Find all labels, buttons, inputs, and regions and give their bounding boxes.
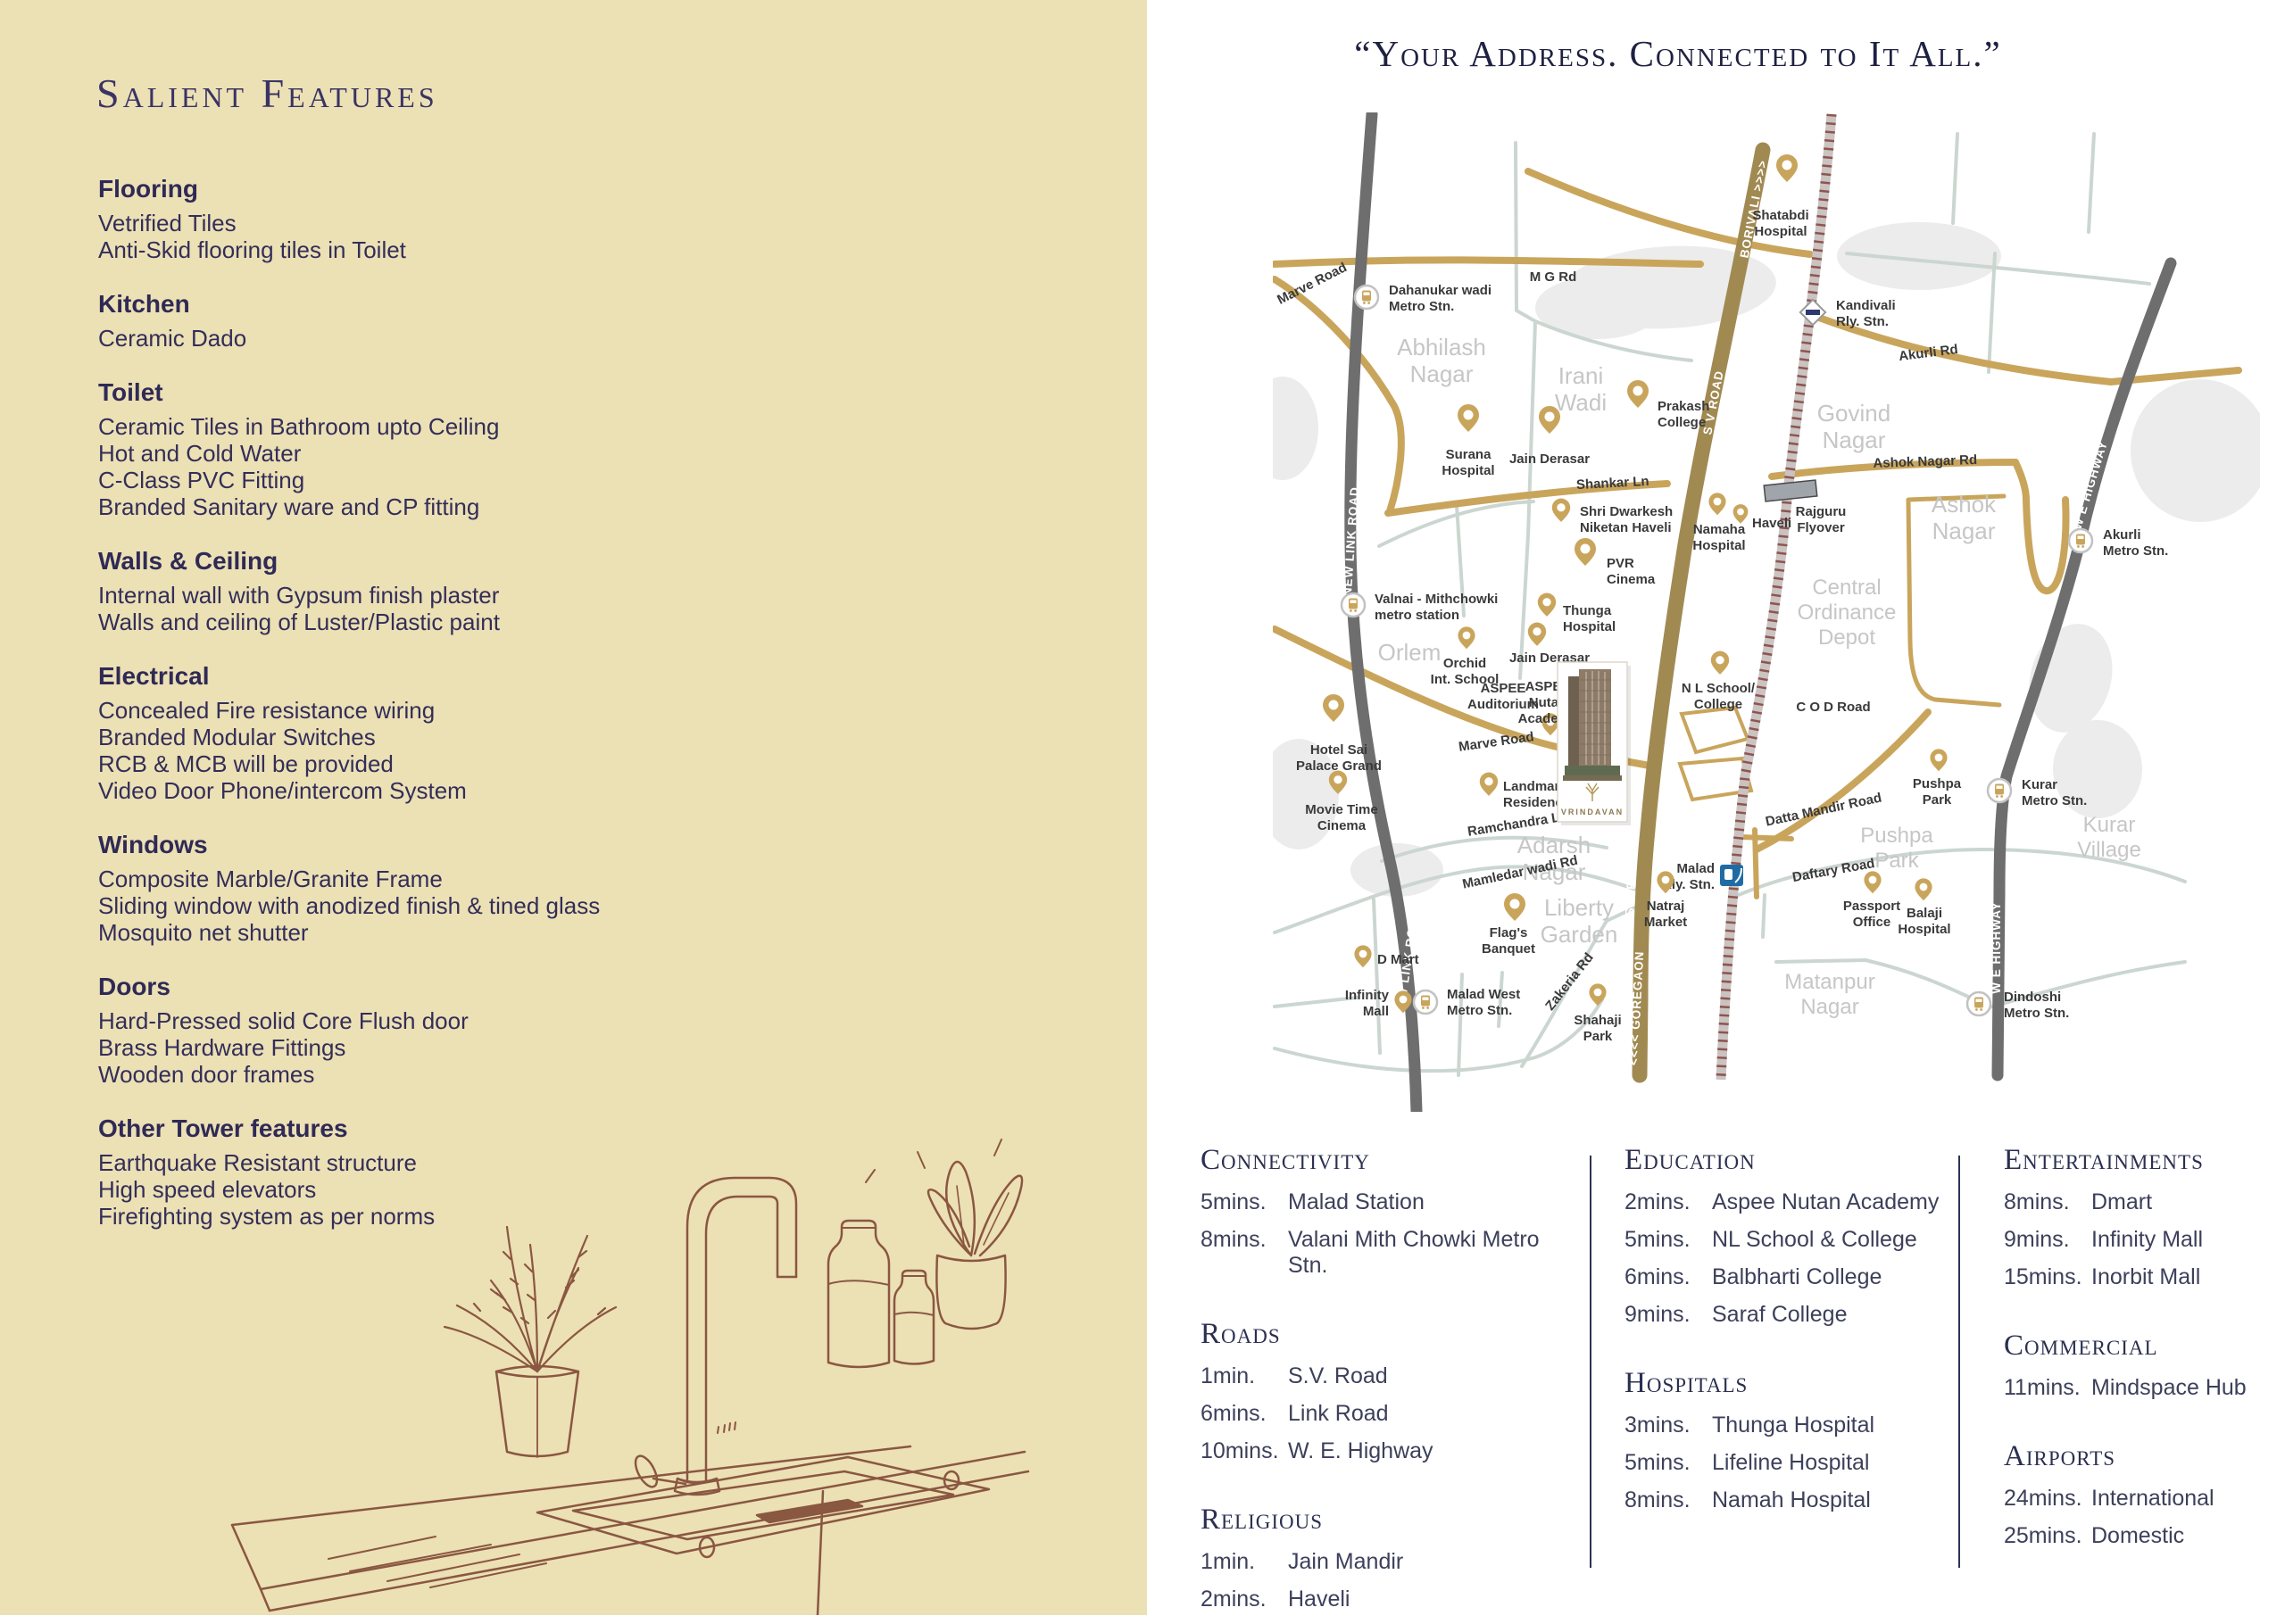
feature-section-electrical: ElectricalConcealed Fire resistance wiri… xyxy=(98,662,723,804)
road-malad-east xyxy=(1741,830,1791,897)
salient-features-title: Salient Features xyxy=(96,70,438,117)
distance-row: 8mins.Dmart xyxy=(2004,1189,2276,1215)
sink-inner-rim xyxy=(573,1471,953,1539)
feature-item: Walls and ceiling of Luster/Plastic pain… xyxy=(98,609,723,635)
category-title: Connectivity xyxy=(1201,1144,1584,1177)
feature-item: Vetrified Tiles xyxy=(98,210,723,236)
distance-time: 11mins. xyxy=(2004,1375,2091,1401)
category-commercial: Commercial11mins.Mindspace Hub xyxy=(2004,1330,2276,1401)
map-pin-pushpa-park: PushpaPark xyxy=(1913,749,1962,808)
feature-item: Hard-Pressed solid Core Flush door xyxy=(98,1007,723,1034)
map-pin-label: PassportOffice xyxy=(1843,899,1900,930)
vrindavan-card-name: VRINDAVAN xyxy=(1561,808,1624,816)
faucet-lever xyxy=(631,1453,661,1490)
onroad-label-new-link-road: NEW LINK ROAD xyxy=(1341,486,1362,597)
map-pin-label: NatrajMarket xyxy=(1644,899,1687,930)
map-park-blobs xyxy=(1273,222,2260,897)
distance-time: 9mins. xyxy=(1624,1302,1712,1328)
distance-place: Infinity Mall xyxy=(2091,1227,2276,1253)
feature-item: Anti-Skid flooring tiles in Toilet xyxy=(98,236,723,263)
category-title: Roads xyxy=(1201,1318,1584,1351)
distance-place: Haveli xyxy=(1288,1587,1584,1612)
distance-time: 5mins. xyxy=(1624,1450,1712,1476)
category-title: Education xyxy=(1624,1144,1955,1177)
distance-place: Inorbit Mall xyxy=(2091,1264,2276,1290)
area-label-orlem: Orlem xyxy=(1378,639,1442,666)
area-label-kurar-village: KurarVillage xyxy=(2077,813,2141,862)
column-divider xyxy=(1958,1156,1960,1568)
feature-item: Wooden door frames xyxy=(98,1061,723,1088)
distance-row: 10mins.W. E. Highway xyxy=(1201,1438,1584,1464)
category-religious: Religious1min.Jain Mandir2mins.Haveli xyxy=(1201,1504,1584,1612)
column-divider xyxy=(1590,1156,1591,1568)
tower-body xyxy=(1579,669,1611,766)
map-pin-kandivali-rly-stn: KandivaliRly. Stn. xyxy=(1800,298,1896,329)
faucet-outline xyxy=(687,1178,796,1482)
feature-heading: Walls & Ceiling xyxy=(98,547,723,576)
distance-row: 9mins.Infinity Mall xyxy=(2004,1227,2276,1253)
feature-section-windows: WindowsComposite Marble/Granite FrameSli… xyxy=(98,831,723,946)
distance-row: 1min.S.V. Road xyxy=(1201,1363,1584,1389)
plant-sprigs xyxy=(866,1139,1001,1182)
distance-row: 8mins.Namah Hospital xyxy=(1624,1487,1955,1513)
category-entertainments: Entertainments8mins.Dmart9mins.Infinity … xyxy=(2004,1144,2276,1290)
plant-stems xyxy=(445,1227,616,1371)
feature-item: Internal wall with Gypsum finish plaster xyxy=(98,582,723,609)
feature-item: Branded Sanitary ware and CP fitting xyxy=(98,493,723,520)
distance-row: 11mins.Mindspace Hub xyxy=(2004,1375,2276,1401)
map-pin-label: Flag'sBanquet xyxy=(1482,925,1535,957)
distances-column-1: Connectivity5mins.Malad Station8mins.Val… xyxy=(1201,1144,1584,1624)
feature-section-kitchen: KitchenCeramic Dado xyxy=(98,290,723,352)
brochure-page: { "colors": { "beige_panel": "#ece0b5", … xyxy=(0,0,2285,1615)
distance-time: 2mins. xyxy=(1624,1189,1712,1215)
feature-heading: Windows xyxy=(98,831,723,859)
feature-section-doors: DoorsHard-Pressed solid Core Flush doorB… xyxy=(98,973,723,1088)
area-label-central-ordinance-depot: CentralOrdinanceDepot xyxy=(1798,576,1897,650)
map-pin-label: PushpaPark xyxy=(1913,776,1962,808)
distance-place: Aspee Nutan Academy xyxy=(1712,1189,1955,1215)
map-pin-nl-school-college: N L School/College xyxy=(1682,651,1756,712)
feature-item: Video Door Phone/intercom System xyxy=(98,777,723,804)
map-pin-label: PVRCinema xyxy=(1607,556,1656,587)
map-pin-label: Valnai - Mithchowkimetro station xyxy=(1375,592,1498,623)
area-label-matanpur-nagar: MatanpurNagar xyxy=(1784,970,1874,1019)
map-pin-shahaji-park: ShahajiPark xyxy=(1574,983,1621,1044)
distances-column-2: Education2mins.Aspee Nutan Academy5mins.… xyxy=(1624,1144,1955,1525)
counter-left-end xyxy=(232,1525,270,1611)
distance-row: 5mins.NL School & College xyxy=(1624,1227,1955,1253)
map-pin-label: PrakashCollege xyxy=(1658,399,1709,430)
distance-row: 8mins.Valani Mith Chowki Metro Stn. xyxy=(1201,1227,1584,1279)
feature-item: C-Class PVC Fitting xyxy=(98,467,723,493)
distance-row: 6mins.Balbharti College xyxy=(1624,1264,1955,1290)
distance-place: Lifeline Hospital xyxy=(1712,1450,1955,1476)
distance-row: 3mins.Thunga Hospital xyxy=(1624,1413,1955,1438)
map-pin-label: ThungaHospital xyxy=(1563,603,1616,634)
distance-place: Thunga Hospital xyxy=(1712,1413,1955,1438)
road-label-daftary-road: Daftary Road xyxy=(1791,856,1876,885)
feature-section-walls-ceiling: Walls & CeilingInternal wall with Gypsum… xyxy=(98,547,723,635)
feature-item: Ceramic Tiles in Bathroom upto Ceiling xyxy=(98,413,723,440)
feature-item: Ceramic Dado xyxy=(98,325,723,352)
map-pin-label: DindoshiMetro Stn. xyxy=(2004,990,2069,1021)
location-map: AbhilashNagarIraniWadiOrlemGovindNagarAs… xyxy=(1273,112,2260,1112)
feature-heading: Doors xyxy=(98,973,723,1001)
map-pin-malad-west-metro: Malad WestMetro Stn. xyxy=(1414,987,1520,1018)
map-pin-label: D Mart xyxy=(1377,952,1419,967)
distance-time: 5mins. xyxy=(1624,1227,1712,1253)
distance-time: 1min. xyxy=(1201,1363,1288,1389)
distance-time: 8mins. xyxy=(1624,1487,1712,1513)
map-pin-balaji-hospital: BalajiHospital xyxy=(1898,878,1950,937)
page-quote-title: “Your Address. Connected to It All.” xyxy=(1339,32,2017,75)
distance-time: 5mins. xyxy=(1201,1189,1288,1215)
distance-row: 24mins.International xyxy=(2004,1486,2276,1512)
feature-item: RCB & MCB will be provided xyxy=(98,750,723,777)
map-pin-shri-dwarkesh-niketan-haveli: Shri DwarkeshNiketan Haveli xyxy=(1552,499,1673,535)
feature-item: Branded Modular Switches xyxy=(98,724,723,750)
area-label-govind-nagar: GovindNagar xyxy=(1817,400,1890,453)
distance-time: 3mins. xyxy=(1624,1413,1712,1438)
map-pin-label: ShatabdiHospital xyxy=(1752,208,1808,239)
map-pin-label: KandivaliRly. Stn. xyxy=(1836,298,1896,329)
map-pin-label: InfinityMall xyxy=(1345,988,1390,1019)
map-pin-label: Jain Derasar xyxy=(1509,452,1590,467)
map-pin-surana-hospital: SuranaHospital xyxy=(1442,404,1494,478)
feature-item: Concealed Fire resistance wiring xyxy=(98,697,723,724)
distances-column-3: Entertainments8mins.Dmart9mins.Infinity … xyxy=(2004,1144,2276,1561)
feature-heading: Toilet xyxy=(98,378,723,407)
distance-place: Domestic xyxy=(2091,1523,2276,1549)
road-label-rajguru-flyover: RajguruFlyover xyxy=(1796,504,1847,535)
category-title: Airports xyxy=(2004,1440,2276,1473)
road-label-c-o-d-road: C O D Road xyxy=(1796,700,1870,715)
distance-place: Dmart xyxy=(2091,1189,2276,1215)
onroad-label-w-e-highway: W E HIGHWAY xyxy=(1990,901,2003,994)
map-pin-label: Dahanukar wadiMetro Stn. xyxy=(1389,283,1491,314)
category-hospitals: Hospitals3mins.Thunga Hospital5mins.Life… xyxy=(1624,1367,1955,1513)
distance-time: 15mins. xyxy=(2004,1264,2091,1290)
distance-place: Mindspace Hub xyxy=(2091,1375,2276,1401)
category-title: Religious xyxy=(1201,1504,1584,1537)
road-ashok-loop xyxy=(2015,462,2065,591)
rajguru-flyover xyxy=(1764,480,1817,501)
distance-row: 5mins.Malad Station xyxy=(1201,1189,1584,1215)
map-pin-label: N L School/College xyxy=(1682,681,1756,712)
map-pin-label: NamahaHospital xyxy=(1692,522,1745,553)
distance-time: 10mins. xyxy=(1201,1438,1288,1464)
features-list: FlooringVetrified TilesAnti-Skid floorin… xyxy=(98,175,723,1230)
feature-heading: Kitchen xyxy=(98,290,723,319)
distance-row: 9mins.Saraf College xyxy=(1624,1302,1955,1328)
distance-place: Saraf College xyxy=(1712,1302,1955,1328)
area-label-ashok-nagar: AshokNagar xyxy=(1932,491,1997,544)
map-pin-valnai-mithchowki-metro: Valnai - Mithchowkimetro station xyxy=(1342,592,1498,623)
bottle-large xyxy=(828,1221,889,1367)
tower-left-wing xyxy=(1568,676,1579,766)
map-pin-akurli-metro: AkurliMetro Stn. xyxy=(2069,527,2168,559)
map-pin-pvr-cinema: PVRCinema xyxy=(1575,538,1656,587)
map-pin-prakash-college: PrakashCollege xyxy=(1627,380,1709,430)
faucet-inner xyxy=(706,1197,777,1482)
distance-time: 24mins. xyxy=(2004,1486,2091,1512)
category-title: Commercial xyxy=(2004,1330,2276,1363)
distance-place: NL School & College xyxy=(1712,1227,1955,1253)
bottle-small-cap xyxy=(894,1276,934,1315)
distance-row: 6mins.Link Road xyxy=(1201,1401,1584,1427)
distance-time: 6mins. xyxy=(1201,1401,1288,1427)
road-label-m-g-rd: M G Rd xyxy=(1530,269,1577,285)
distance-row: 1min.Jain Mandir xyxy=(1201,1549,1584,1575)
category-roads: Roads1min.S.V. Road6mins.Link Road10mins… xyxy=(1201,1318,1584,1464)
plant-pot-right xyxy=(936,1255,1005,1329)
distance-row: 15mins.Inorbit Mall xyxy=(2004,1264,2276,1290)
distance-place: S.V. Road xyxy=(1288,1363,1584,1389)
area-label-liberty-garden: LibertyGarden xyxy=(1541,894,1618,948)
distance-time: 9mins. xyxy=(2004,1227,2091,1253)
category-title: Hospitals xyxy=(1624,1367,1955,1400)
feature-heading: Electrical xyxy=(98,662,723,691)
area-label-irani-wadi: IraniWadi xyxy=(1555,362,1607,416)
road-label-zakeria-rd: Zakeria Rd xyxy=(1542,950,1597,1014)
feature-item: Sliding window with anodized finish & ti… xyxy=(98,892,723,919)
map-pin-label: Haveli xyxy=(1752,516,1791,531)
vrindavan-project-card: VRINDAVAN xyxy=(1558,662,1631,825)
category-education: Education2mins.Aspee Nutan Academy5mins.… xyxy=(1624,1144,1955,1328)
distance-time: 6mins. xyxy=(1624,1264,1712,1290)
distance-place: International xyxy=(2091,1486,2276,1512)
bottle-large-cap xyxy=(828,1228,889,1285)
distance-place: Malad Station xyxy=(1288,1189,1584,1215)
feature-item: Hot and Cold Water xyxy=(98,440,723,467)
road-label-ashok-nagar-rd: Ashok Nagar Rd xyxy=(1873,452,1977,471)
map-pin-label: SuranaHospital xyxy=(1442,447,1494,478)
distance-place: Valani Mith Chowki Metro Stn. xyxy=(1288,1227,1584,1279)
feature-item: Brass Hardware Fittings xyxy=(98,1034,723,1061)
map-pin-passport-office: PassportOffice xyxy=(1843,871,1900,930)
distance-row: 2mins.Haveli xyxy=(1201,1587,1584,1612)
tower-podium xyxy=(1565,766,1620,775)
distance-row: 25mins.Domestic xyxy=(2004,1523,2276,1549)
sink-ticks xyxy=(718,1422,735,1433)
category-connectivity: Connectivity5mins.Malad Station8mins.Val… xyxy=(1201,1144,1584,1279)
map-pin-label: Shri DwarkeshNiketan Haveli xyxy=(1580,504,1673,535)
category-airports: Airports24mins.International25mins.Domes… xyxy=(2004,1440,2276,1549)
area-label-abhilash-nagar: AbhilashNagar xyxy=(1397,334,1486,387)
distance-time: 2mins. xyxy=(1201,1587,1288,1612)
distance-time: 8mins. xyxy=(2004,1189,2091,1215)
feature-heading: Flooring xyxy=(98,175,723,203)
distance-time: 25mins. xyxy=(2004,1523,2091,1549)
distance-place: Link Road xyxy=(1288,1401,1584,1427)
map-pin-flags-banquet: Flag'sBanquet xyxy=(1482,893,1535,957)
map-pin-dindoshi-metro: DindoshiMetro Stn. xyxy=(1967,990,2069,1021)
bottle-small xyxy=(894,1271,934,1364)
feature-section-toilet: ToiletCeramic Tiles in Bathroom upto Cei… xyxy=(98,378,723,520)
distance-time: 8mins. xyxy=(1201,1227,1288,1279)
distance-place: W. E. Highway xyxy=(1288,1438,1584,1464)
feature-item: Mosquito net shutter xyxy=(98,919,723,946)
distance-row: 5mins.Lifeline Hospital xyxy=(1624,1450,1955,1476)
distance-row: 2mins.Aspee Nutan Academy xyxy=(1624,1189,1955,1215)
map-pin-thunga-hospital: ThungaHospital xyxy=(1538,593,1616,634)
feature-item: Composite Marble/Granite Frame xyxy=(98,866,723,892)
map-pin-label: AkurliMetro Stn. xyxy=(2103,527,2168,559)
road-label-marve-road: Marve Road xyxy=(1458,729,1535,755)
feature-section-flooring: FlooringVetrified TilesAnti-Skid floorin… xyxy=(98,175,723,263)
distance-place: Balbharti College xyxy=(1712,1264,1955,1290)
kitchen-sketch xyxy=(223,1093,1035,1615)
distance-time: 1min. xyxy=(1201,1549,1288,1575)
map-pin-dahanukar-wadi-metro: Dahanukar wadiMetro Stn. xyxy=(1355,283,1491,314)
distance-place: Namah Hospital xyxy=(1712,1487,1955,1513)
map-pin-label: Malad WestMetro Stn. xyxy=(1447,987,1520,1018)
road-label-shankar-ln: Shankar Ln xyxy=(1576,474,1649,493)
category-title: Entertainments xyxy=(2004,1144,2276,1177)
distance-place: Jain Mandir xyxy=(1288,1549,1584,1575)
salient-features-panel: Salient Features FlooringVetrified Tiles… xyxy=(0,0,1147,1615)
map-pin-namaha-hospital: NamahaHospital xyxy=(1692,493,1745,553)
map-pin-label: BalajiHospital xyxy=(1898,906,1950,937)
